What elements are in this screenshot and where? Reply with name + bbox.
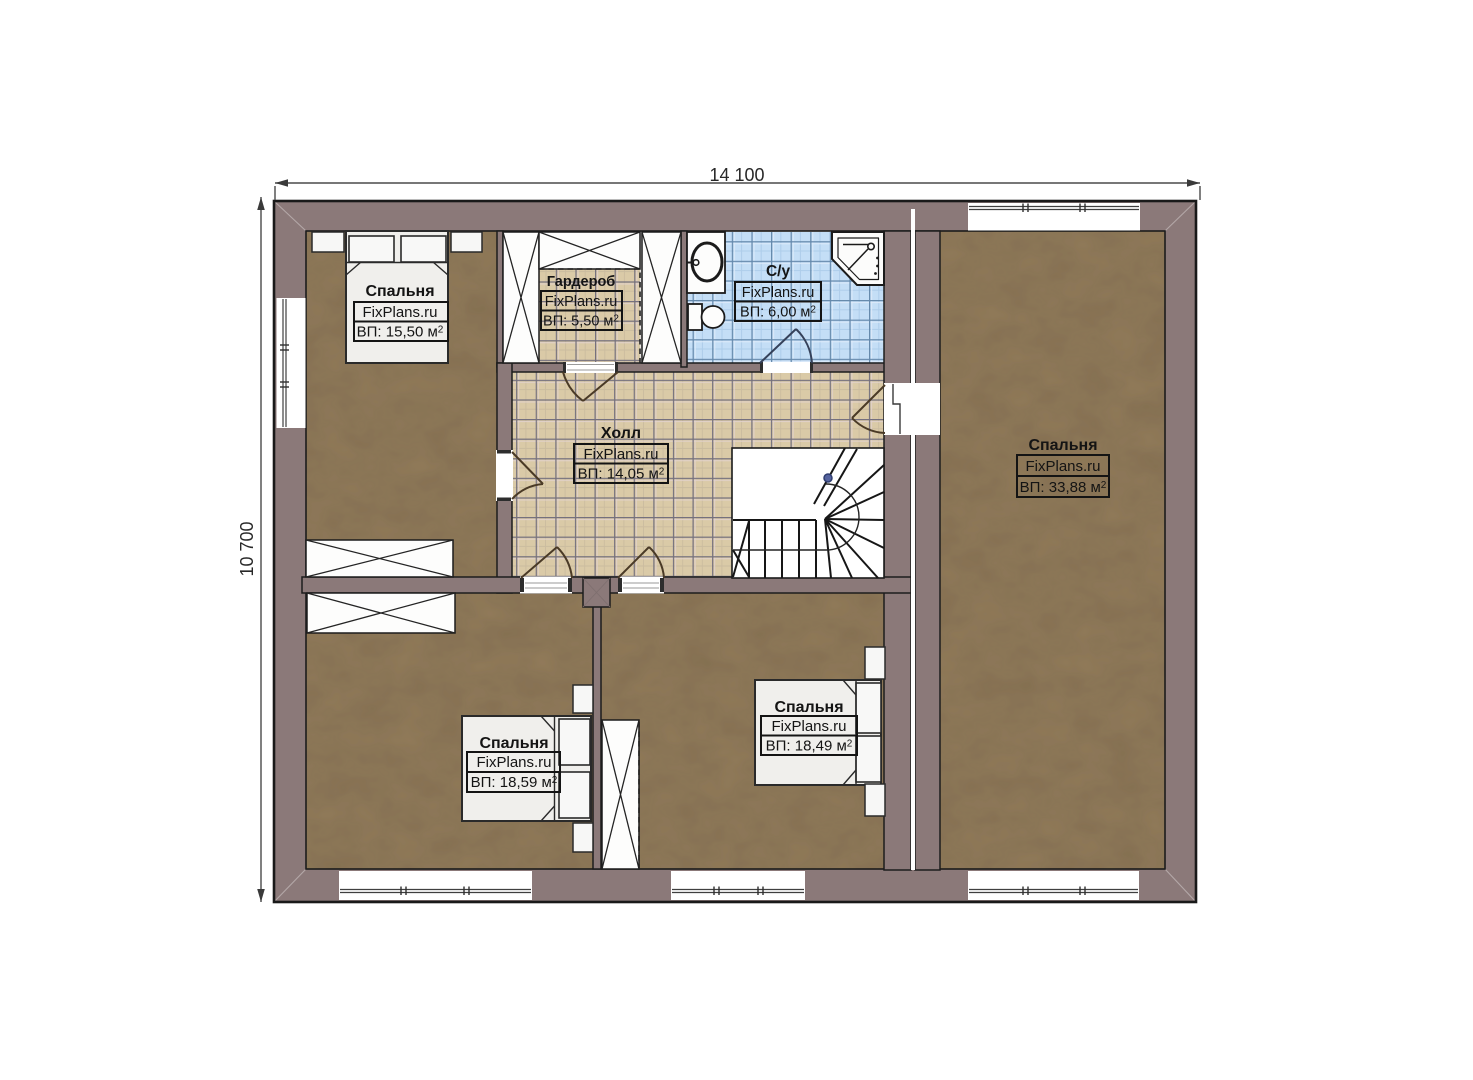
svg-text:С/у: С/у bbox=[766, 263, 791, 280]
svg-text:14 100: 14 100 bbox=[709, 165, 764, 185]
svg-text:ВП: 6,00 м2: ВП: 6,00 м2 bbox=[740, 305, 816, 321]
svg-text:10 700: 10 700 bbox=[237, 521, 257, 576]
svg-text:Спальня: Спальня bbox=[479, 735, 548, 752]
svg-text:Холл: Холл bbox=[601, 425, 641, 442]
svg-text:Спальня: Спальня bbox=[365, 283, 434, 300]
svg-text:FixPlans.ru: FixPlans.ru bbox=[1025, 458, 1100, 475]
svg-text:ВП: 15,50 м2: ВП: 15,50 м2 bbox=[357, 324, 444, 341]
svg-text:Гардероб: Гардероб bbox=[547, 274, 616, 290]
svg-text:Спальня: Спальня bbox=[1028, 437, 1097, 454]
svg-text:FixPlans.ru: FixPlans.ru bbox=[362, 304, 437, 321]
svg-text:FixPlans.ru: FixPlans.ru bbox=[771, 718, 846, 735]
svg-text:ВП: 18,59 м2: ВП: 18,59 м2 bbox=[471, 774, 558, 791]
svg-text:ВП: 18,49 м2: ВП: 18,49 м2 bbox=[766, 738, 853, 755]
svg-text:FixPlans.ru: FixPlans.ru bbox=[545, 294, 618, 310]
svg-text:ВП: 33,88 м2: ВП: 33,88 м2 bbox=[1020, 479, 1107, 496]
svg-text:FixPlans.ru: FixPlans.ru bbox=[476, 754, 551, 771]
svg-text:ВП: 14,05 м2: ВП: 14,05 м2 bbox=[578, 466, 665, 483]
svg-text:FixPlans.ru: FixPlans.ru bbox=[583, 446, 658, 463]
svg-text:FixPlans.ru: FixPlans.ru bbox=[742, 285, 815, 301]
svg-text:Спальня: Спальня bbox=[774, 699, 843, 716]
svg-text:ВП: 5,50 м2: ВП: 5,50 м2 bbox=[543, 314, 619, 330]
